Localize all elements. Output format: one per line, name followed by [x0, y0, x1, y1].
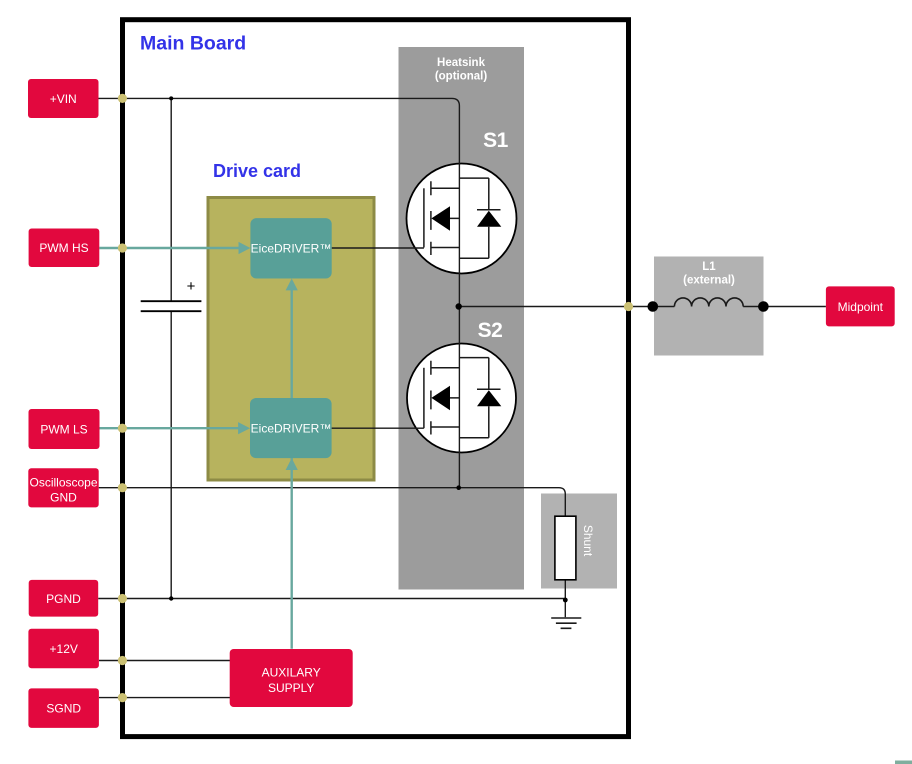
svg-text:SGND: SGND: [46, 702, 81, 716]
svg-text:+: +: [187, 278, 196, 295]
svg-text:SUPPLY: SUPPLY: [268, 681, 314, 695]
svg-text:EiceDRIVER™: EiceDRIVER™: [251, 422, 332, 436]
svg-text:PGND: PGND: [46, 592, 81, 606]
svg-text:AUXILARY: AUXILARY: [262, 666, 321, 680]
svg-text:(optional): (optional): [435, 71, 488, 83]
svg-text:Drive card: Drive card: [213, 161, 301, 181]
svg-text:EiceDRIVER™: EiceDRIVER™: [251, 241, 332, 255]
svg-text:+VIN: +VIN: [50, 92, 77, 106]
svg-text:PWM HS: PWM HS: [39, 241, 88, 255]
svg-text:(external): (external): [683, 275, 735, 287]
svg-text:Shunt: Shunt: [581, 525, 595, 557]
svg-text:GND: GND: [50, 491, 77, 505]
svg-text:+12V: +12V: [50, 642, 78, 656]
svg-text:Midpoint: Midpoint: [838, 300, 884, 314]
svg-text:S2: S2: [478, 319, 503, 342]
svg-text:Oscilloscope: Oscilloscope: [29, 476, 97, 490]
svg-text:S1: S1: [483, 129, 509, 152]
svg-text:Heatsink: Heatsink: [437, 57, 486, 69]
svg-text:PWM LS: PWM LS: [40, 423, 87, 437]
svg-text:L1: L1: [702, 261, 716, 273]
svg-text:Main Board: Main Board: [140, 33, 246, 55]
